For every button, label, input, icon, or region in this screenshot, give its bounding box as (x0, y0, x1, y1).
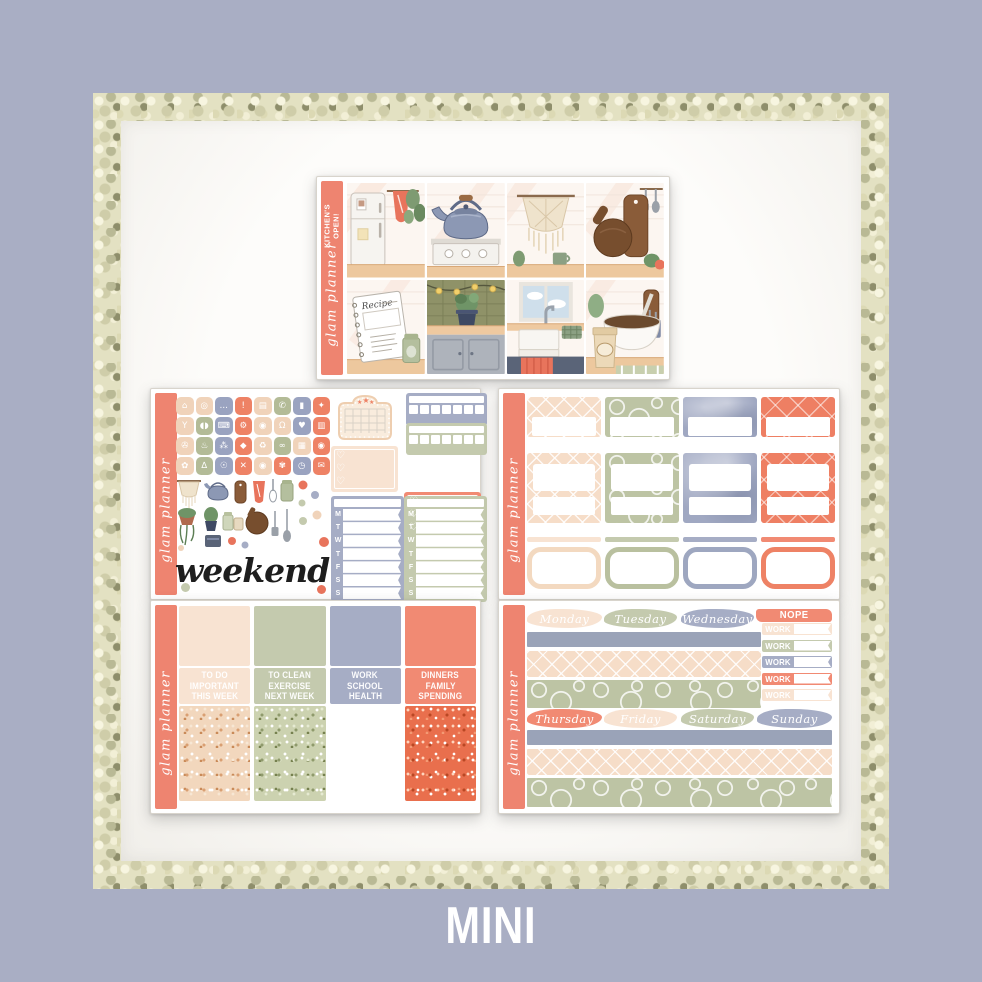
washi-strip-peach-lattice (527, 651, 761, 677)
weekly-row-flag (416, 574, 484, 586)
headers-sidebar: glam planner (155, 605, 177, 809)
camera-icon: ◉ (313, 437, 331, 455)
kit-box-cutting-boards (586, 183, 664, 278)
weekday-letter: T (334, 548, 342, 560)
habit-tracker-sage (406, 423, 487, 455)
date-cover-saturday: Saturday (681, 709, 754, 728)
weekday-letter: S (407, 574, 415, 586)
washi-strip-sage-swirl (527, 680, 761, 708)
half-box-label-area (766, 417, 830, 436)
kit-size-text: MINI (445, 896, 536, 956)
header-label-line: SPENDING (418, 691, 462, 702)
header-label-line: HEALTH (348, 691, 381, 702)
heart-checklist-peach: ♡♡♡ (331, 446, 398, 492)
gift-icon: ▦ (293, 437, 311, 455)
tracker-cell (453, 405, 462, 414)
tracker-cell (475, 435, 484, 444)
book-icon: ▤ (254, 397, 272, 415)
labeled-box-white-area (611, 464, 673, 491)
open-box-coral (761, 547, 835, 589)
heart-icon: ♡ (336, 464, 345, 474)
sneaker-icon: ✦ (313, 397, 331, 415)
glitter-swatch-sage (254, 706, 325, 801)
header-label-line: FAMILY (425, 681, 455, 692)
kit-box-kettle (427, 183, 505, 278)
weekly-row: F (407, 561, 484, 573)
recycle-icon: ♻ (254, 437, 272, 455)
weekly-row: M (407, 509, 484, 521)
date-cover-label: Sunday (771, 712, 817, 726)
header-label-box: TO DOIMPORTANTTHIS WEEK (179, 668, 250, 704)
header-label-line: NEXT WEEK (265, 691, 315, 702)
marquee-tracker-sticker: ★★★ (331, 395, 399, 441)
nail-polish-icon: ▮ (293, 397, 311, 415)
confetti-dot (317, 585, 326, 594)
header-solid-box (405, 606, 476, 666)
scale-icon: ∆ (196, 457, 214, 475)
date-cover-wednesday: Wednesday (681, 609, 754, 628)
phone-icon: ✆ (274, 397, 292, 415)
weekly-row-flag (416, 561, 484, 573)
date-cover-friday: Friday (604, 709, 677, 728)
weekday-letter: S (407, 587, 415, 599)
weekly-row: S (407, 587, 484, 599)
laundry-icon: ◎ (196, 397, 214, 415)
tracker-cell (442, 435, 451, 444)
work-flag-label: WORK (763, 673, 792, 685)
header-column-peach: TO DOIMPORTANTTHIS WEEK (179, 606, 250, 813)
weekly-row: W (334, 535, 401, 547)
spray-bottle-icon: ⁂ (215, 437, 233, 455)
half-box-coral (761, 397, 835, 437)
kit-box-recipe-book: Recipe (347, 280, 425, 375)
labeled-box-white-area (767, 464, 829, 491)
deco-illustrations (175, 477, 327, 551)
work-flag-tail (794, 624, 831, 634)
work-flag-lavender: WORK (762, 656, 832, 668)
work-flag-coral: WORK (762, 673, 832, 685)
header-column-sage: TO CLEANEXERCISENEXT WEEK (254, 606, 325, 813)
brand-script: glam planner (507, 671, 522, 777)
faucet-icon: ♨ (196, 437, 214, 455)
confetti-dot (319, 537, 329, 547)
work-flag-tail (794, 690, 831, 700)
dates-sidebar: glam planner (503, 605, 525, 809)
weekly-row: F (334, 561, 401, 573)
kit-box-sink (507, 280, 585, 375)
labeled-box-peach (527, 453, 601, 523)
laptop-icon: ⌨ (215, 417, 233, 435)
brand-script: glam planner (325, 241, 340, 347)
trash-icon: ✕ (235, 457, 253, 475)
lightbulb-icon: ☉ (215, 457, 233, 475)
tracker-cell (409, 435, 418, 444)
alert-icon: ! (235, 397, 253, 415)
weekday-letter: S (334, 574, 342, 586)
home-icon: ⌂ (176, 397, 194, 415)
weekly-title-strip (407, 499, 484, 507)
work-flag-tail (794, 674, 831, 684)
weekly-row-flag (416, 587, 484, 599)
work-flag-tail (794, 641, 831, 651)
half-box-label-area (532, 417, 596, 436)
date-cover-label: Thursday (535, 712, 594, 726)
weekly-row: S (334, 587, 401, 599)
box-column-peach (527, 397, 601, 599)
half-box-lavender (683, 397, 757, 437)
thin-strip-sage (605, 537, 679, 542)
icon-grid: ⌂◎…!▤✆▮✦Y◖◗⌨⚙◉Ω♥▥✇♨⁂◆♻∞▦◉✿∆☉✕◉✾◷✉ (176, 397, 330, 475)
heart-icon: ♡ (409, 523, 418, 533)
washi-strip-sage-swirl (527, 778, 832, 807)
boxes-sidebar: glam planner (503, 393, 525, 595)
kit-sidebar: KITCHEN'S OPEN! glam planner (321, 181, 343, 375)
weekly-checklist-lavender: MTWTFSS (331, 496, 404, 602)
work-flag-label: WORK (763, 623, 792, 635)
half-box-peach (527, 397, 601, 437)
sheet-headers-glitter: glam planner TO DOIMPORTANTTHIS WEEKTO C… (150, 600, 481, 814)
boxes-columns (527, 389, 835, 599)
weekly-title-strip (334, 499, 401, 507)
camera-2-icon: ◉ (254, 457, 272, 475)
brand-script: glam planner (507, 457, 522, 563)
open-box-sage (605, 547, 679, 589)
tracker-cell (431, 405, 440, 414)
tracker-cell (420, 435, 429, 444)
thin-strip-peach (527, 537, 601, 542)
work-flag-sage: WORK (762, 640, 832, 652)
weekday-letter: W (334, 535, 342, 547)
weekly-row: M (334, 509, 401, 521)
tracker-cells (409, 435, 484, 444)
header-solid-box (254, 606, 325, 666)
date-cover-thursday: Thursday (527, 709, 602, 728)
open-box-peach (527, 547, 601, 589)
labeled-box-white-area (689, 464, 751, 491)
weekly-row-flag (416, 509, 484, 521)
date-cover-monday: Monday (527, 609, 602, 628)
work-flag-peach: WORK (762, 689, 832, 701)
weekday-letter: S (334, 587, 342, 599)
header-label-line: EXERCISE (269, 681, 311, 692)
tracker-cell (420, 405, 429, 414)
labeled-box-strip (767, 497, 829, 515)
tracker-cell (464, 435, 473, 444)
half-box-label-area (610, 417, 674, 436)
heart-icon: ♡ (336, 451, 345, 461)
sheet-weekly-kit: KITCHEN'S OPEN! glam planner (316, 176, 670, 380)
tracker-cell (442, 405, 451, 414)
labeled-box-coral (761, 453, 835, 523)
pill-icon: ◖◗ (196, 417, 214, 435)
balloons-icon: ✿ (176, 457, 194, 475)
tracker-cell (409, 405, 418, 414)
mail-icon: ✉ (313, 457, 331, 475)
box-column-sage (605, 397, 679, 599)
glitter-swatch-coral (405, 706, 476, 801)
brand-script: glam planner (159, 457, 174, 563)
weekly-row-flag (343, 561, 401, 573)
nope-label: NOPE (780, 610, 809, 621)
kit-box-macrame (507, 183, 585, 278)
sheet-functional-boxes: glam planner (498, 388, 840, 600)
credit-card-icon: ▥ (313, 417, 331, 435)
date-cover-label: Saturday (689, 712, 746, 726)
weekly-row: T (407, 522, 484, 534)
kit-size-label: MINI (0, 896, 982, 956)
hearts-column: ♡♡♡ (409, 496, 418, 534)
work-flag-label: WORK (763, 656, 792, 668)
weekly-row-flag (416, 535, 484, 547)
weekly-row: T (334, 548, 401, 560)
heart-icon: ♡ (409, 497, 418, 507)
date-cover-tuesday: Tuesday (604, 609, 677, 628)
heart-icon: ♡ (409, 510, 418, 520)
clock-icon: ◷ (293, 457, 311, 475)
confetti-dot (181, 583, 190, 592)
header-solid-box (330, 606, 401, 666)
washi-strip-silver-glitter (527, 632, 761, 647)
chat-icon: … (215, 397, 233, 415)
header-label-box: WORKSCHOOLHEALTH (330, 668, 401, 704)
date-cover-label: Monday (540, 612, 590, 626)
half-box-label-area (688, 417, 752, 436)
rings-icon: ∞ (274, 437, 292, 455)
header-label-line: WORK (352, 670, 378, 681)
date-cover-sunday: Sunday (757, 709, 832, 728)
weekend-script: weekend (173, 545, 331, 595)
hair-dryer-icon: ✇ (176, 437, 194, 455)
tracker-cells (409, 405, 484, 414)
weekday-letter: T (334, 522, 342, 534)
labeled-box-strip (689, 497, 751, 515)
tractor-icon: ⚙ (235, 417, 253, 435)
weekly-row-flag (343, 522, 401, 534)
labeled-box-white-area (533, 464, 595, 491)
weekly-row: T (407, 548, 484, 560)
tracker-label-strip (409, 426, 484, 433)
hearts-column: ♡♡♡ (336, 450, 345, 488)
work-flag-label: WORK (763, 640, 792, 652)
tooth-icon: Ω (274, 417, 292, 435)
date-cover-label: Friday (620, 712, 661, 726)
weekly-row-flag (416, 548, 484, 560)
header-label-box: DINNERSFAMILYSPENDING (405, 668, 476, 704)
washi-strip-silver-glitter (527, 730, 832, 745)
kit-box-mixing-bowl (586, 280, 664, 375)
weekly-row-flag (416, 522, 484, 534)
heart-icon: ♡ (336, 477, 345, 487)
kit-grid: Recipe (347, 183, 664, 374)
tracker-cell (475, 405, 484, 414)
donut-icon: ◉ (254, 417, 272, 435)
car-icon: ◆ (235, 437, 253, 455)
cheers-icon: Y (176, 417, 194, 435)
weekly-row: S (407, 574, 484, 586)
weekly-row: S (334, 574, 401, 586)
weekday-letter: T (407, 548, 415, 560)
glitter-swatch-lavender (330, 706, 401, 801)
labeled-box-sage (605, 453, 679, 523)
tracker-label-strip (409, 396, 484, 403)
header-label-line: DINNERS (422, 670, 460, 681)
labeled-box-strip (611, 497, 673, 515)
box-column-lavender (683, 397, 757, 599)
kit-box-fridge (347, 183, 425, 278)
paw-icon: ✾ (274, 457, 292, 475)
glitter-swatch-peach (179, 706, 250, 801)
weekly-row-flag (343, 509, 401, 521)
habit-tracker-lavender (406, 393, 487, 426)
tracker-cell (453, 435, 462, 444)
product-image: KITCHEN'S OPEN! glam planner (0, 0, 982, 982)
header-column-lavender: WORKSCHOOLHEALTH (330, 606, 401, 813)
labeled-box-lavender (683, 453, 757, 523)
work-flag-tail (794, 657, 831, 667)
weekly-row-flag (343, 574, 401, 586)
headers-columns: TO DOIMPORTANTTHIS WEEKTO CLEANEXERCISEN… (179, 601, 476, 813)
header-label-box: TO CLEANEXERCISENEXT WEEK (254, 668, 325, 704)
half-box-sage (605, 397, 679, 437)
open-box-lavender (683, 547, 757, 589)
header-label-line: THIS WEEK (191, 691, 238, 702)
weekly-row: W (407, 535, 484, 547)
weekly-row: T (334, 522, 401, 534)
weekday-letter: F (334, 561, 342, 573)
box-column-coral (761, 397, 835, 599)
header-solid-box (179, 606, 250, 666)
work-flag-peach: WORK (762, 623, 832, 635)
weekly-row-flag (343, 535, 401, 547)
thin-strip-coral (761, 537, 835, 542)
work-flag-label: WORK (763, 689, 792, 701)
tracker-cell (464, 405, 473, 414)
sheet-icons-sampler: glam planner ⌂◎…!▤✆▮✦Y◖◗⌨⚙◉Ω♥▥✇♨⁂◆♻∞▦◉✿∆… (150, 388, 481, 600)
nope-sticker: NOPE (756, 609, 832, 622)
weekday-letter: F (407, 561, 415, 573)
thin-strip-lavender (683, 537, 757, 542)
date-cover-label: Tuesday (615, 612, 667, 626)
date-cover-label: Wednesday (682, 612, 752, 626)
washi-strip-peach-lattice (527, 749, 832, 775)
weekly-row-flag (343, 548, 401, 560)
header-label-line: SCHOOL (347, 681, 383, 692)
labeled-box-strip (533, 497, 595, 515)
sheet-date-covers: glam planner NOPE WORKWORKWORKWORKWORK M… (498, 600, 840, 814)
weekday-letter: M (334, 509, 342, 521)
weekday-letter: W (407, 535, 415, 547)
tracker-cell (431, 435, 440, 444)
brand-script: glam planner (159, 671, 174, 777)
svg-text:★: ★ (369, 399, 374, 406)
kit-box-counter-plant (427, 280, 505, 375)
header-label-line: TO CLEAN (269, 670, 312, 681)
heart-icon: ♥ (293, 417, 311, 435)
header-label-line: TO DO (201, 670, 227, 681)
header-column-coral: DINNERSFAMILYSPENDING (405, 606, 476, 813)
header-label-line: IMPORTANT (190, 681, 239, 692)
weekly-row-flag (343, 587, 401, 599)
